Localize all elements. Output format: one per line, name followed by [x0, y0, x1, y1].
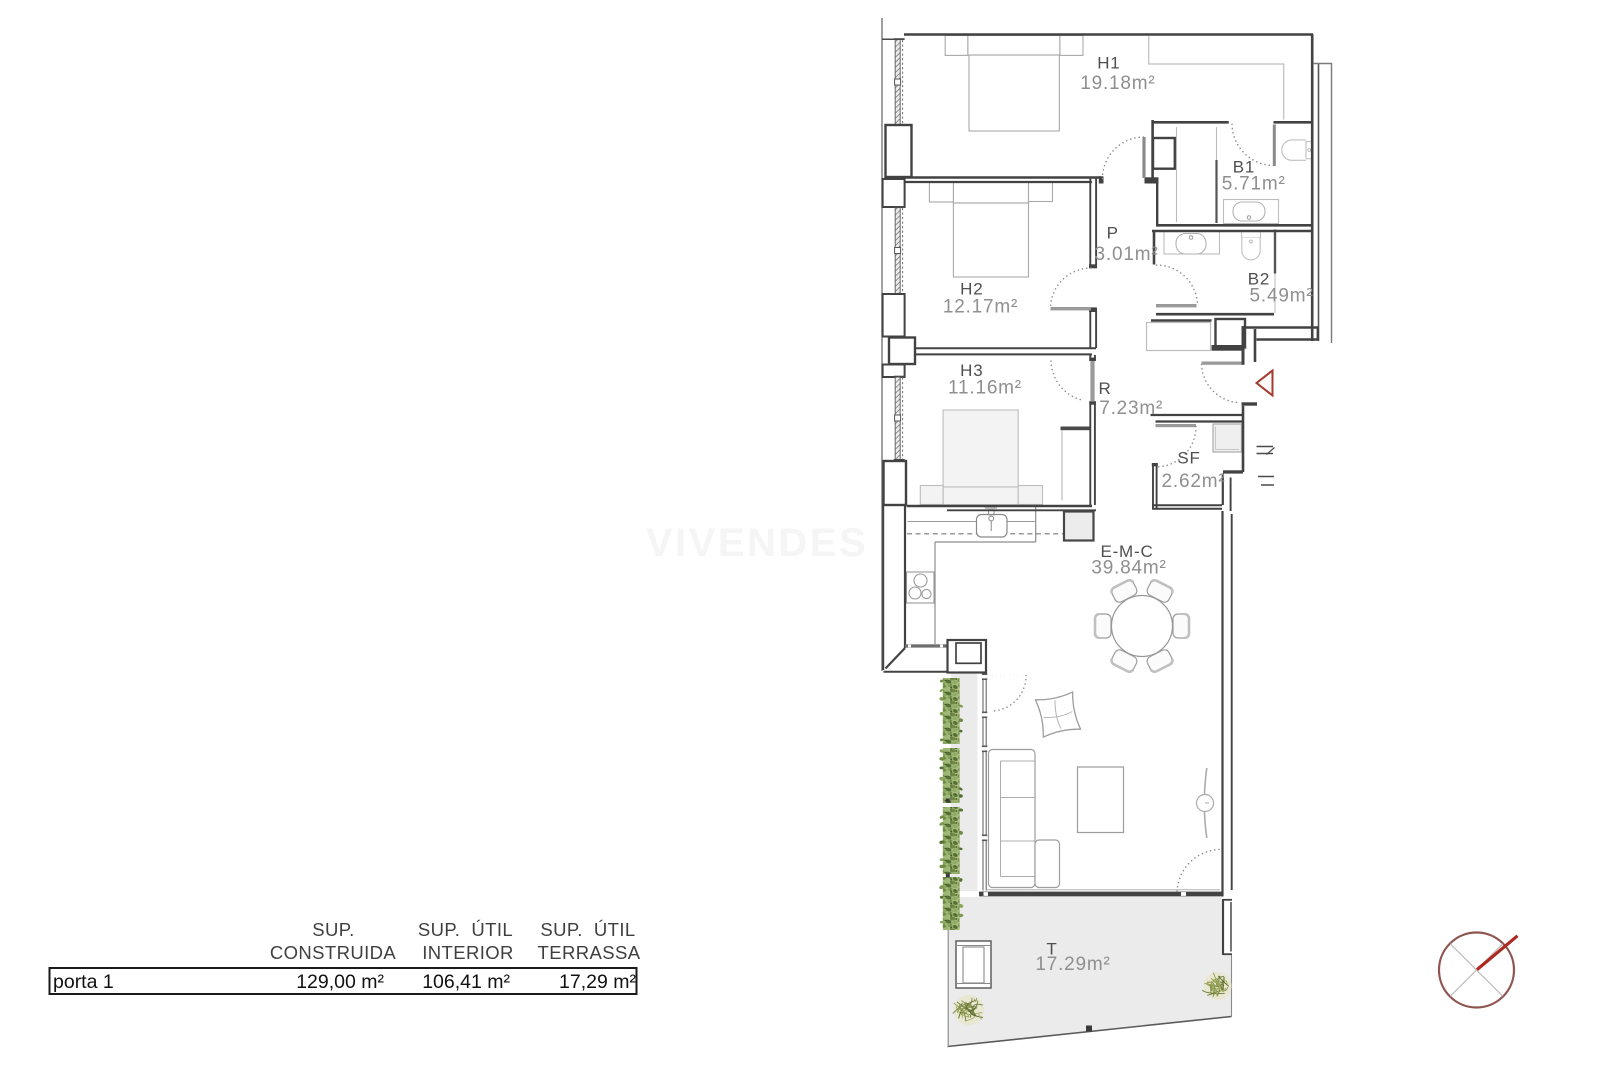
svg-text:19.18m²: 19.18m²	[1080, 73, 1155, 94]
svg-text:17.29m²: 17.29m²	[1035, 954, 1110, 975]
svg-text:H1: H1	[1097, 53, 1120, 72]
svg-text:TERRASSA: TERRASSA	[538, 942, 641, 963]
svg-text:17,29 m²: 17,29 m²	[559, 971, 636, 993]
svg-text:SUP.: SUP.	[312, 919, 354, 940]
svg-text:12.17m²: 12.17m²	[943, 297, 1018, 318]
svg-text:129,00 m²: 129,00 m²	[296, 971, 384, 993]
svg-text:11.16m²: 11.16m²	[948, 377, 1022, 398]
svg-text:2.62m²: 2.62m²	[1162, 471, 1226, 492]
svg-text:porta 1: porta 1	[53, 971, 114, 993]
svg-text:R: R	[1098, 379, 1111, 398]
svg-text:5.71m²: 5.71m²	[1222, 174, 1286, 195]
svg-text:5.49m²: 5.49m²	[1250, 286, 1314, 307]
svg-text:SF: SF	[1177, 449, 1200, 468]
svg-text:VIVENDES: VIVENDES	[646, 521, 868, 565]
svg-text:7.23m²: 7.23m²	[1099, 398, 1163, 419]
svg-text:CONSTRUIDA: CONSTRUIDA	[270, 942, 397, 963]
svg-text:SUP. ÚTIL: SUP. ÚTIL	[418, 919, 513, 940]
svg-text:INTERIOR: INTERIOR	[422, 942, 514, 963]
svg-text:3.01m²: 3.01m²	[1095, 244, 1159, 265]
svg-text:SUP. ÚTIL: SUP. ÚTIL	[540, 919, 635, 940]
svg-text:P: P	[1107, 223, 1119, 242]
svg-text:39.84m²: 39.84m²	[1091, 557, 1166, 578]
svg-text:106,41 m²: 106,41 m²	[422, 971, 510, 993]
